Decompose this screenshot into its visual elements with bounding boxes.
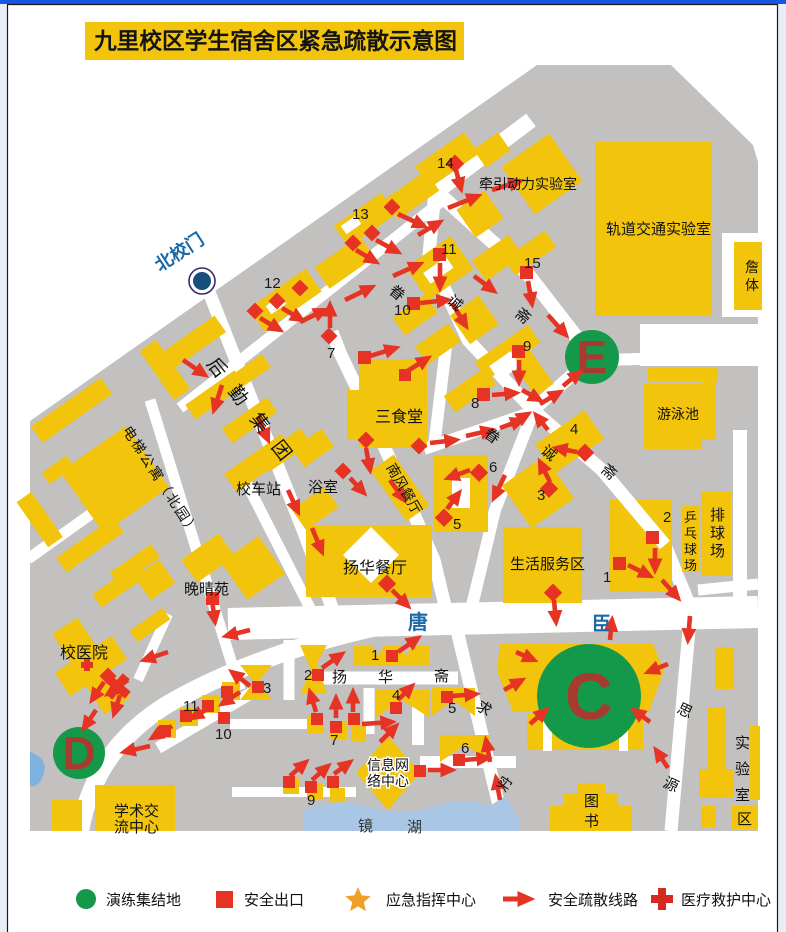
svg-text:球: 球 [710,525,725,542]
svg-text:校医院: 校医院 [60,644,108,662]
svg-text:场: 场 [710,543,725,560]
svg-text:15: 15 [524,255,541,272]
svg-text:唐: 唐 [408,610,428,634]
svg-text:流中心: 流中心 [114,819,159,836]
svg-text:5: 5 [448,700,456,717]
svg-text:11: 11 [183,698,199,715]
svg-text:校车站: 校车站 [236,481,281,498]
svg-text:10: 10 [215,726,232,743]
svg-text:室: 室 [735,787,750,804]
svg-text:10: 10 [394,302,411,319]
svg-text:2: 2 [663,509,671,526]
svg-text:1: 1 [371,647,379,664]
svg-text:3: 3 [537,487,545,504]
svg-text:学术交: 学术交 [114,802,159,820]
svg-text:安全疏散线路: 安全疏散线路 [548,891,638,909]
svg-text:9: 9 [523,338,531,355]
svg-text:4: 4 [392,687,400,704]
svg-text:扬华餐厅: 扬华餐厅 [343,559,407,577]
svg-text:图: 图 [584,793,599,810]
svg-text:华: 华 [378,669,393,686]
svg-text:3: 3 [263,680,271,697]
svg-text:C: C [565,659,613,733]
svg-text:游泳池: 游泳池 [657,406,699,422]
svg-text:11: 11 [441,241,457,258]
svg-text:排: 排 [710,507,725,524]
svg-text:D: D [62,727,95,779]
svg-text:九里校区学生宿舍区紧急疏散示意图: 九里校区学生宿舍区紧急疏散示意图 [93,28,457,54]
svg-text:湖: 湖 [407,819,422,836]
svg-text:书: 书 [584,813,599,830]
svg-text:镜: 镜 [358,817,373,835]
svg-text:14: 14 [437,155,454,172]
svg-text:应急指挥中心: 应急指挥中心 [386,891,476,909]
svg-text:13: 13 [352,206,369,223]
svg-text:1: 1 [603,569,611,586]
svg-text:区: 区 [737,811,752,828]
svg-text:臣: 臣 [592,614,611,635]
svg-text:实: 实 [735,735,750,752]
svg-text:安全出口: 安全出口 [244,891,304,909]
svg-text:4: 4 [570,421,578,438]
svg-text:12: 12 [264,275,281,292]
svg-text:斋: 斋 [434,668,449,685]
svg-text:乒: 乒 [684,510,697,525]
svg-text:络中心: 络中心 [367,773,409,789]
svg-text:球: 球 [684,542,697,557]
svg-text:体: 体 [745,277,759,293]
svg-text:场: 场 [684,558,697,573]
svg-text:扬: 扬 [332,669,347,686]
svg-text:6: 6 [489,459,497,476]
svg-text:信息网: 信息网 [367,757,409,773]
svg-text:晚晴苑: 晚晴苑 [184,581,229,598]
svg-text:乓: 乓 [684,526,697,541]
svg-text:E: E [577,331,608,383]
svg-text:2: 2 [304,667,312,684]
svg-text:7: 7 [327,345,335,362]
svg-text:詹: 詹 [745,259,759,275]
svg-text:牵引动力实验室: 牵引动力实验室 [479,176,577,192]
svg-text:生活服务区: 生活服务区 [510,556,585,573]
svg-text:验: 验 [735,761,750,778]
svg-text:医疗救护中心: 医疗救护中心 [681,892,771,909]
svg-text:8: 8 [471,395,479,412]
svg-text:轨道交通实验室: 轨道交通实验室 [606,220,711,238]
svg-text:浴室: 浴室 [308,479,338,496]
svg-text:5: 5 [453,516,461,533]
svg-text:演练集结地: 演练集结地 [106,892,181,909]
svg-text:6: 6 [461,740,469,757]
svg-text:三食堂: 三食堂 [375,408,423,426]
svg-text:7: 7 [330,732,338,749]
svg-text:9: 9 [307,792,315,809]
